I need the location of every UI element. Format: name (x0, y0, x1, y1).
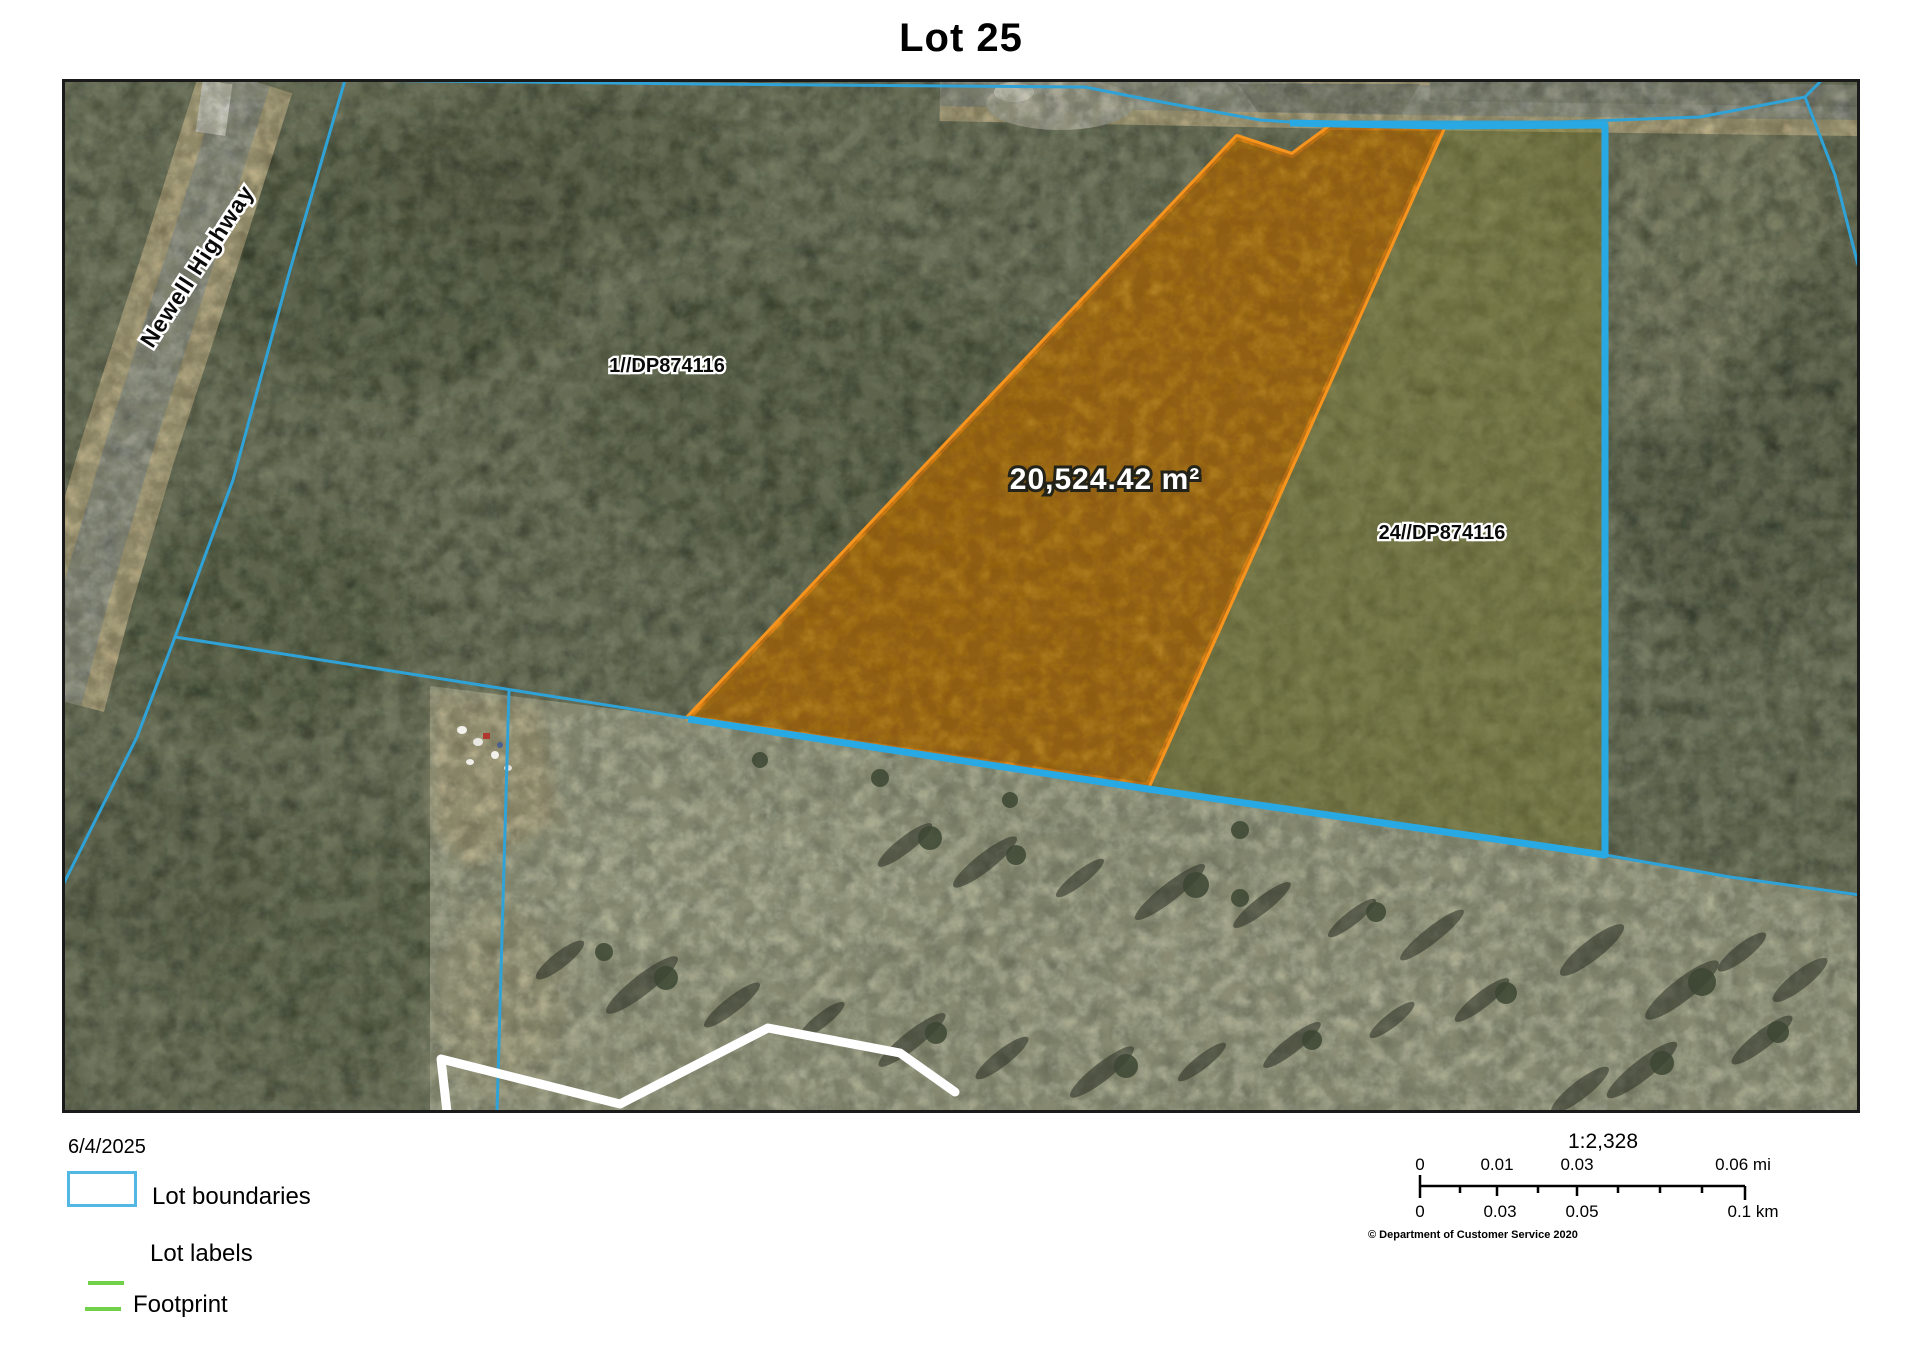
map-canvas: Newell Highway 1//DP874116 20,524.42 m² … (62, 79, 1860, 1113)
scale-km-1: 0.03 (1483, 1202, 1516, 1221)
legend-item-lot-labels: Lot labels (150, 1240, 253, 1268)
lot-boundaries-swatch (67, 1171, 137, 1207)
page-title: Lot 25 (62, 16, 1860, 61)
footprint-swatch-line (85, 1307, 121, 1311)
scale-bar-ticks (1420, 1175, 1745, 1200)
scale-km-0: 0 (1415, 1202, 1424, 1221)
map-date: 6/4/2025 (68, 1136, 146, 1159)
legend-item-lot-boundaries: Lot boundaries (152, 1183, 311, 1211)
scale-ratio: 1:2,328 (1568, 1130, 1638, 1153)
scale-mi-2: 0.03 (1560, 1155, 1593, 1174)
scale-km-3: 0.1 km (1727, 1202, 1778, 1221)
scale-bar-svg: 1:2,328 0 0.01 0.03 0.06 mi 0 0.03 0.05 … (1340, 1125, 1860, 1255)
lot1-label: 1//DP874116 (609, 355, 725, 377)
parcel-area-label: 20,524.42 m² (1010, 463, 1200, 496)
copyright-text: © Department of Customer Service 2020 (1368, 1229, 1578, 1241)
aerial-map: Newell Highway 1//DP874116 20,524.42 m² … (62, 79, 1860, 1113)
scale-km-2: 0.05 (1565, 1202, 1598, 1221)
scale-mi-1: 0.01 (1480, 1155, 1513, 1174)
scale-mi-0: 0 (1415, 1155, 1424, 1174)
scale-mi-3: 0.06 mi (1715, 1155, 1771, 1174)
scale-bar: 1:2,328 0 0.01 0.03 0.06 mi 0 0.03 0.05 … (1340, 1125, 1860, 1255)
lot-report-page: Lot 25 (0, 0, 1920, 1359)
footprint-swatch-line (88, 1281, 124, 1285)
lot24-label: 24//DP874116 (1379, 522, 1506, 544)
legend-item-footprint: Footprint (133, 1291, 228, 1319)
